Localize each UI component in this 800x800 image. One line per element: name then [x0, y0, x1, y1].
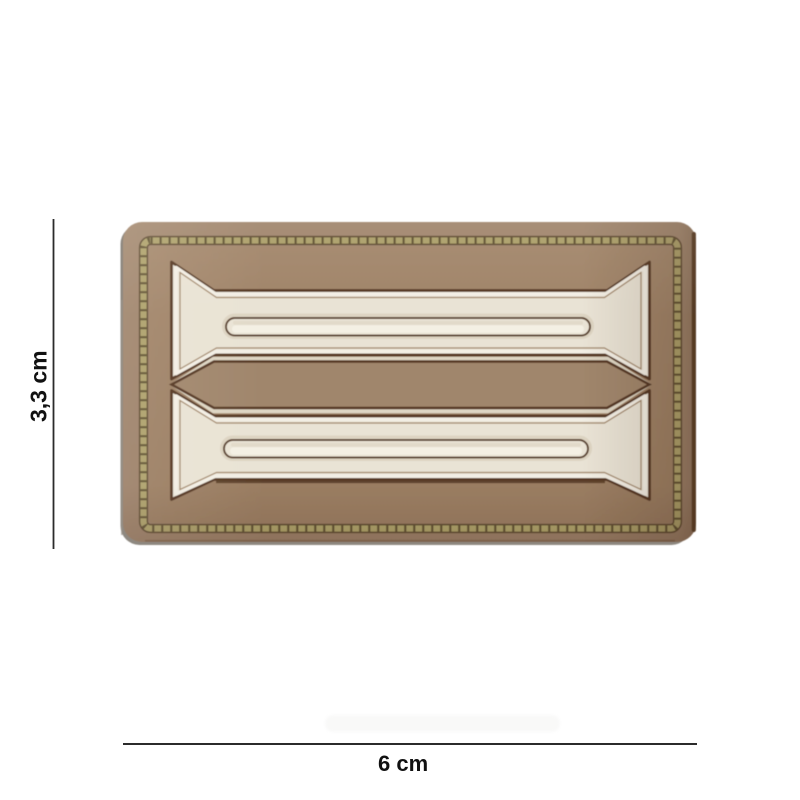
svg-text:3,3 cm: 3,3 cm	[26, 350, 52, 422]
svg-text:6 cm: 6 cm	[378, 751, 428, 776]
